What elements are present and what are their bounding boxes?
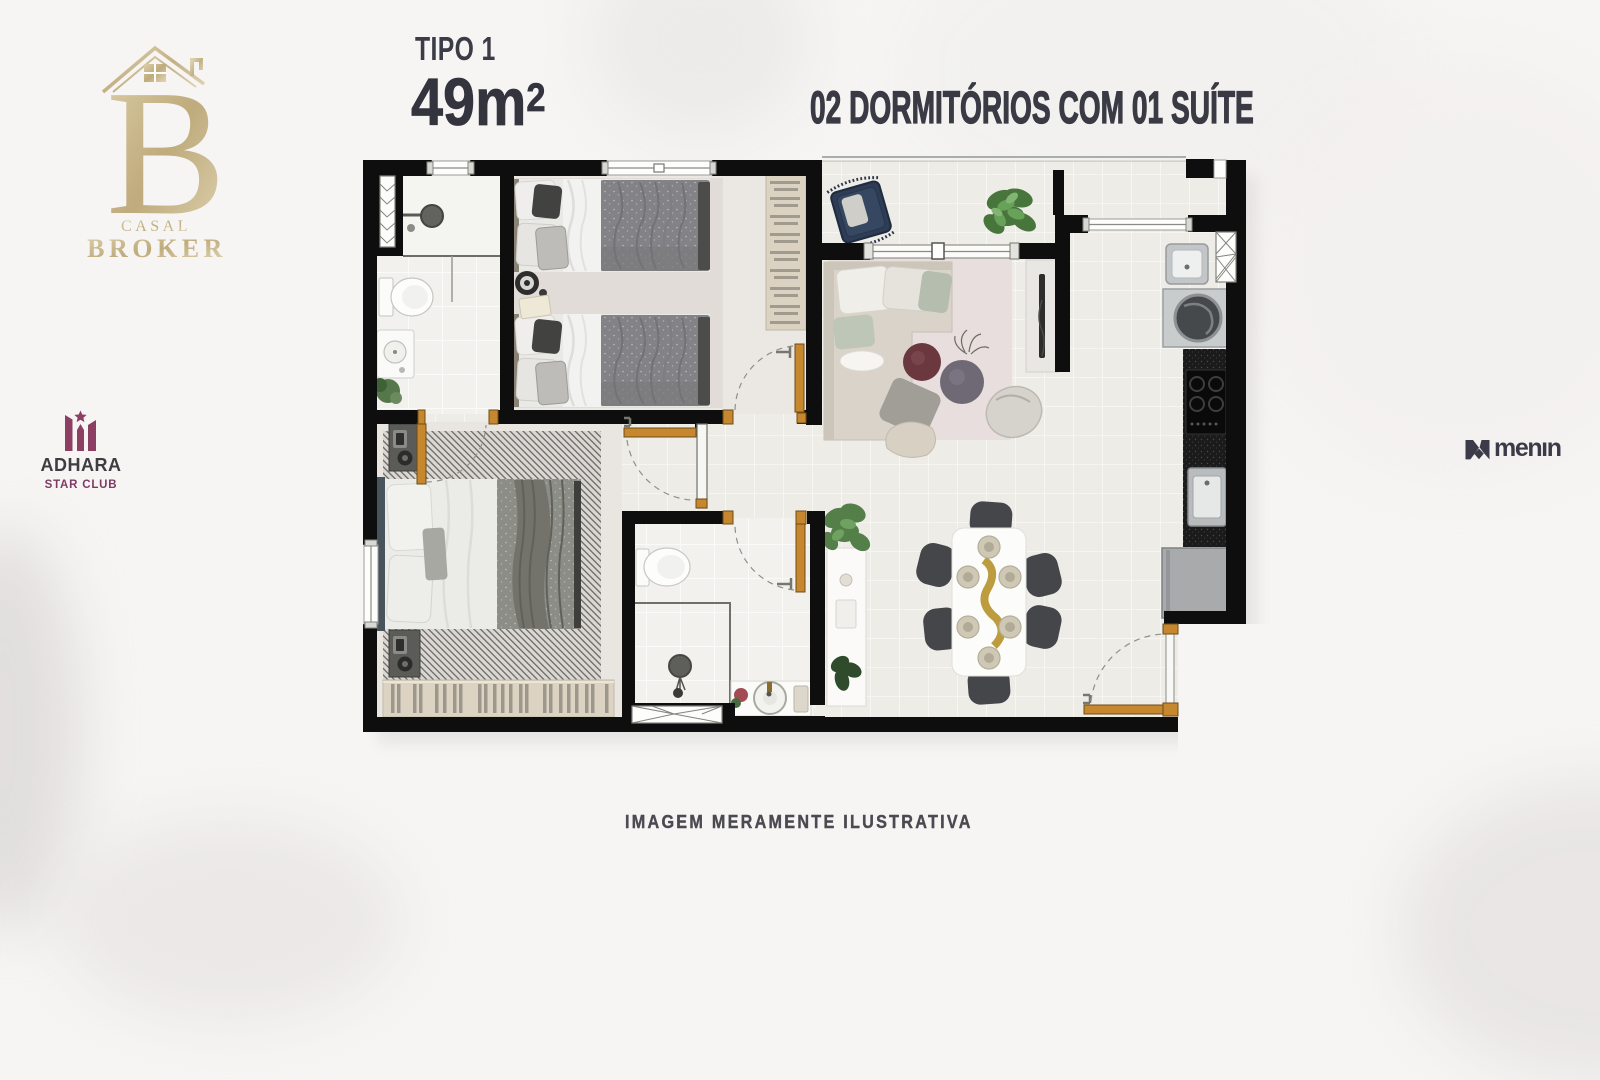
svg-text:menın: menın: [1494, 434, 1562, 462]
svg-text:ADHARA: ADHARA: [41, 455, 122, 475]
svg-text:STAR CLUB: STAR CLUB: [45, 479, 118, 491]
svg-text:CASAL: CASAL: [121, 218, 191, 235]
svg-text:BROKER: BROKER: [87, 234, 227, 263]
